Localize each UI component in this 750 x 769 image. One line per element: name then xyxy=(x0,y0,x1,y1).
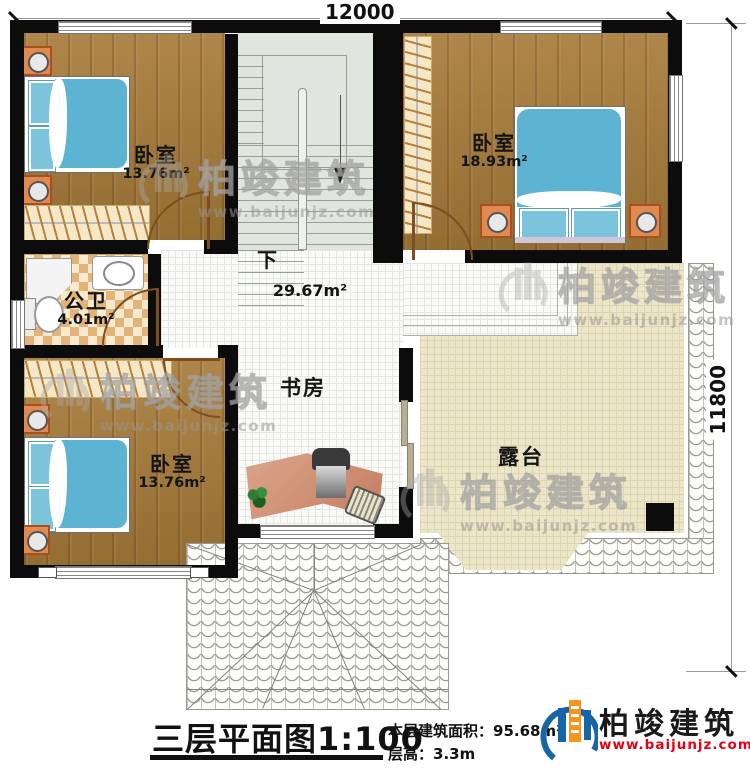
stat-height-label: 层高： xyxy=(388,745,433,763)
window-right-bedroom xyxy=(669,75,683,162)
nightstand xyxy=(22,46,52,76)
room-name: 卧室 xyxy=(122,453,222,475)
roof-hip-line xyxy=(262,590,314,709)
roof-ridge-line xyxy=(314,544,315,590)
dimension-right-label: 11800 xyxy=(706,360,730,440)
stat-height-value: 3.3m xyxy=(433,745,475,763)
sink-icon xyxy=(92,256,144,290)
stair-arrow-stem xyxy=(340,95,341,170)
room-area: 4.01m² xyxy=(36,312,136,328)
stair-down-text: 下 xyxy=(250,249,286,271)
hall-area-label: 29.67m² xyxy=(260,281,360,300)
window-top-right-bedroom xyxy=(500,21,602,34)
desk-chair xyxy=(316,466,346,498)
roof-hip-line xyxy=(187,590,315,710)
roof-hip-line xyxy=(314,544,421,591)
dimension-top-label: 12000 xyxy=(320,0,400,24)
wall-hall-bottom xyxy=(238,524,260,538)
window-end-cap xyxy=(38,567,57,578)
nightstand xyxy=(480,204,512,238)
title-underline xyxy=(150,755,383,760)
window-bathroom xyxy=(11,300,25,349)
pillow xyxy=(572,209,620,239)
nightstand xyxy=(22,404,50,434)
dimension-extension xyxy=(686,23,746,24)
stair-direction-label: 下 xyxy=(250,249,286,271)
window-top-left-bedroom xyxy=(58,21,192,34)
wall-stair-left xyxy=(225,34,238,250)
dimension-line-right xyxy=(731,24,732,672)
window-bottom-left-bedroom xyxy=(55,566,192,579)
stat-area: 本层建筑面积：95.68m² xyxy=(388,720,563,741)
stair-down-arrow-icon xyxy=(334,168,346,184)
brand-url: www.baijunjz.com xyxy=(599,737,750,753)
sliding-door xyxy=(407,443,414,489)
wall-terrace-pier xyxy=(399,487,413,538)
room-label-bedroom-tr: 卧室 18.93m² xyxy=(444,132,544,170)
structural-column xyxy=(646,503,674,531)
room-area: 13.76m² xyxy=(106,166,206,182)
dimension-extension xyxy=(686,671,746,672)
stair-rail xyxy=(298,88,307,250)
room-label-bedroom-bl: 卧室 13.76m² xyxy=(122,453,222,491)
room-name: 卧室 xyxy=(444,132,544,154)
wall-stair-right xyxy=(373,20,403,263)
desk-plant-icon xyxy=(246,486,270,508)
nightstand xyxy=(22,525,50,555)
window-end-cap xyxy=(190,567,209,578)
outer-wall-left xyxy=(10,20,24,578)
brand-logo-icon xyxy=(540,692,598,766)
room-name: 公卫 xyxy=(36,290,136,312)
wall-bathroom-bottom xyxy=(10,345,163,358)
room-area: 29.67m² xyxy=(260,281,360,300)
stair-tread-lines xyxy=(238,55,264,148)
room-label-terrace: 露台 xyxy=(471,446,571,468)
wardrobe-top-left xyxy=(24,205,150,243)
wall-bedroom-bl-right xyxy=(225,358,238,578)
terrace-step-line xyxy=(403,263,558,316)
room-label-bedroom-tl: 卧室 13.76m² xyxy=(106,144,206,182)
terrace-steps xyxy=(403,263,577,335)
wall-bathroom-bottom xyxy=(218,345,238,358)
page-title: 三层平面图1:100 xyxy=(152,714,424,760)
room-label-study: 书房 xyxy=(253,377,353,399)
roof-hip-line xyxy=(313,590,441,710)
bed-bottom-left xyxy=(24,437,130,533)
roof-eave-line xyxy=(187,689,448,690)
bed-top-right xyxy=(514,106,626,243)
wardrobe-bottom-left xyxy=(24,360,172,398)
room-area: 13.76m² xyxy=(122,475,222,491)
pillow xyxy=(520,209,568,239)
plan-title-text: 三层平面图 xyxy=(152,720,317,758)
stat-floor-height: 层高：3.3m xyxy=(388,743,475,764)
nightstand xyxy=(22,175,52,205)
room-label-bathroom: 公卫 4.01m² xyxy=(36,290,136,328)
sink-basin xyxy=(103,261,135,286)
roof-hip-line xyxy=(313,590,365,709)
stat-area-label: 本层建筑面积： xyxy=(388,722,493,740)
room-name: 卧室 xyxy=(106,144,206,166)
wall-bedroom-tl-bottom xyxy=(10,240,148,254)
floor-plan-canvas: 12000 11800 卧室 13.76m² 卧室 18.93m² 公卫 4.0… xyxy=(0,0,750,769)
room-name: 露台 xyxy=(471,446,571,468)
wall-bedroom-tr-bottom xyxy=(465,250,682,263)
nightstand xyxy=(629,204,661,238)
window-hall-bottom xyxy=(260,525,375,539)
wall-terrace-pier xyxy=(399,348,413,402)
room-name: 书房 xyxy=(253,377,353,399)
room-area: 18.93m² xyxy=(444,154,544,170)
bed-bench xyxy=(515,237,625,243)
sliding-door xyxy=(401,400,408,446)
